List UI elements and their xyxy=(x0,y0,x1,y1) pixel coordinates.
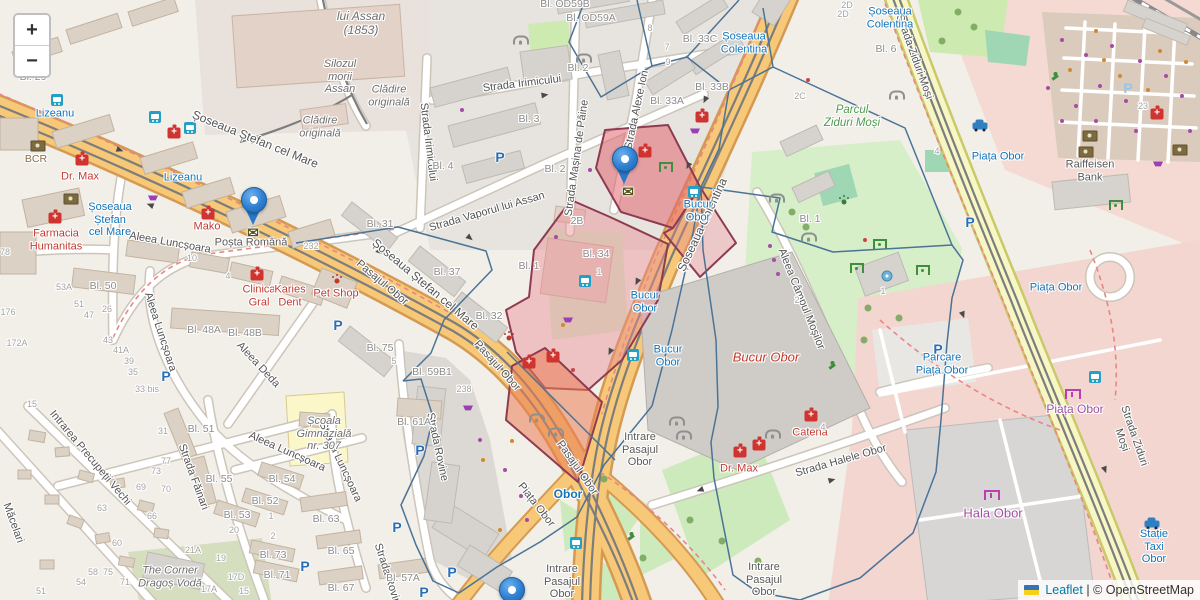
map-canvas[interactable] xyxy=(0,0,1200,600)
marker-pin-hole xyxy=(250,196,258,204)
leaflet-link[interactable]: Leaflet xyxy=(1045,583,1083,597)
ukraine-flag-icon xyxy=(1024,585,1039,595)
marker-pin-hole xyxy=(621,155,629,163)
marker-pin-icon xyxy=(241,187,267,213)
marker-posta-romana[interactable] xyxy=(239,187,267,227)
map-viewport[interactable]: PPPPPPPPPPP Șoseaua Ștefan cel MareȘosea… xyxy=(0,0,1200,600)
marker-intrare-pasajul-obor[interactable] xyxy=(497,577,525,600)
marker-pin-icon xyxy=(612,146,638,172)
zoom-control: + − xyxy=(13,13,51,78)
zoom-in-button[interactable]: + xyxy=(15,15,49,46)
attribution-bar: Leaflet | © OpenStreetMap xyxy=(1018,580,1200,600)
zoom-out-button[interactable]: − xyxy=(15,46,49,76)
marker-pin-icon xyxy=(499,577,525,600)
marker-bucur-obor[interactable] xyxy=(610,146,638,186)
osm-attribution[interactable]: © OpenStreetMap xyxy=(1093,583,1194,597)
marker-pin-hole xyxy=(508,586,516,594)
